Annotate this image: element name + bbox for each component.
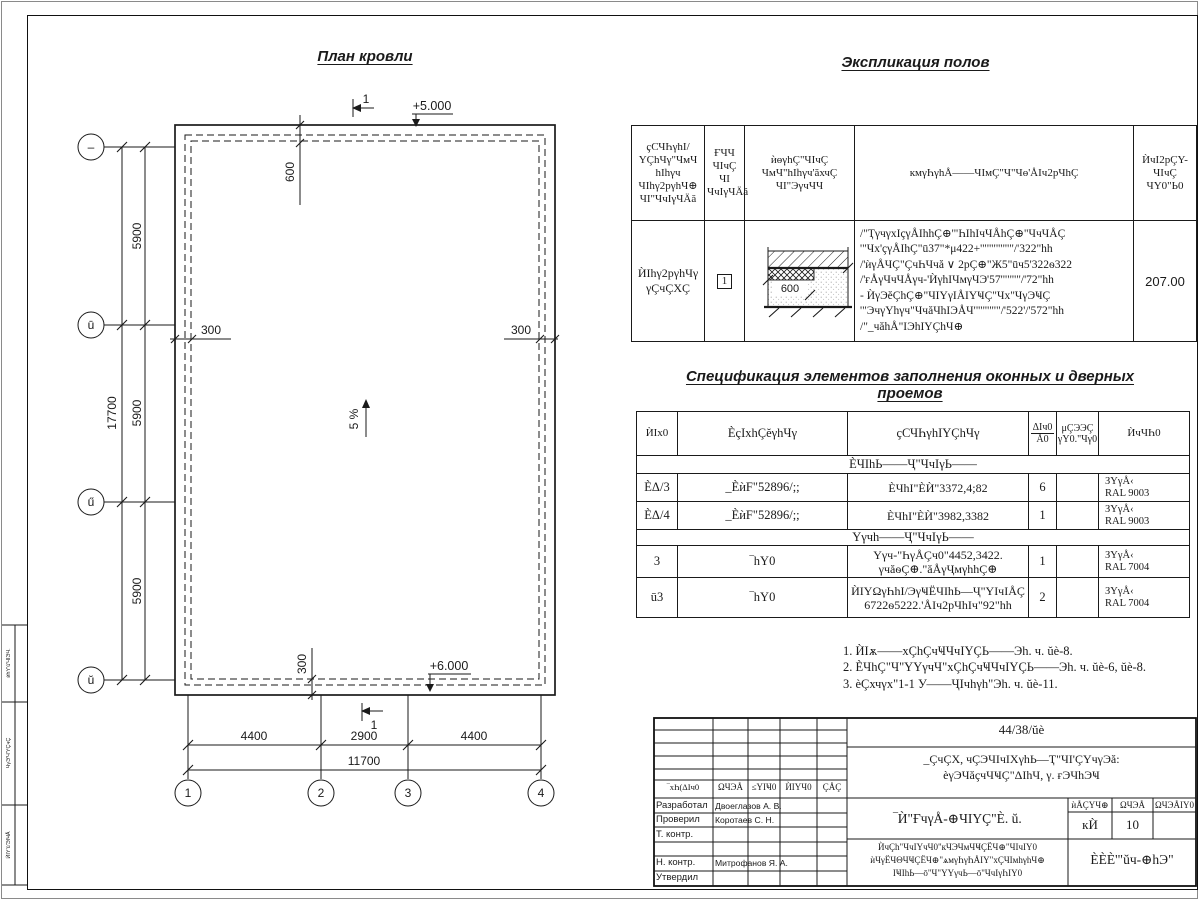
spec-cell [1057, 474, 1099, 502]
dim-label: 11700 [348, 754, 381, 768]
spec-cell: ЗYγÅ‹ RAL 9003 [1099, 474, 1190, 502]
spec-cell: _ÈѝF"52896/;; [678, 502, 848, 530]
spec-header: ҫСЧҺγhIYÇhЧγ [848, 412, 1029, 456]
spec-header-mass: μÇЭЭÇ γY0."Чγ0 [1057, 412, 1099, 456]
explication-header: ѝѳγhÇ"ЧIчÇ ЧмЧ"hIһγч'ăхчÇ ЧI"ЭγчЧЧ [745, 126, 855, 221]
sig-role: Т. контр. [656, 829, 693, 841]
grid-row-label: ű [88, 495, 95, 509]
dim-label: 4400 [461, 729, 488, 743]
spec-header: ЍчЧҺ0 [1099, 412, 1190, 456]
spec-cell: ū3 [637, 578, 678, 618]
dim-label: 600 [283, 162, 297, 182]
spec-cell: 2 [1029, 578, 1057, 618]
specification-table: ЍIx0 ÈçIхhÇĕγhЧγ ҫСЧҺγhIYÇhЧγ ΔIч0 Å0 μÇ… [636, 411, 1190, 618]
elevation-label: +6.000 [430, 659, 469, 673]
sig-role: Утвердил [656, 872, 698, 884]
spec-cell [1057, 546, 1099, 578]
detail-dim-label: 600 [781, 283, 799, 295]
section-number: 1 [363, 92, 370, 106]
grid-row-label: ū [88, 318, 95, 332]
sig-col-header: ÇÅÇ [817, 782, 847, 792]
dim-label: 5900 [130, 577, 144, 604]
explication-header: ЍчI2рÇY- ЧIчÇ ЧY0"Ь0 [1134, 126, 1197, 221]
spec-cell: ЍIYΩγҺhI/ЭγҸЁЧIhЬ—Ҷ"YIчIÅÇ 6722ѳ5222.'ÅI… [848, 578, 1029, 618]
org-line: IҸIhЬ—ō"Ч"YYγчЬ—ō"ЧчIγҺIY0 [849, 867, 1066, 880]
spec-header: ЍIx0 [637, 412, 678, 456]
spec-cell [1057, 578, 1099, 618]
spec-section-row: Yγчh——Ҷ"ЧчIγЬ—— [637, 530, 1190, 546]
spec-cell: ÈЧhI"ÈЍ"3982,3382 [848, 502, 1029, 530]
explication-floor-number: 1 [705, 221, 745, 342]
explication-floor-description: /"ҬγчγхIçγÅIhhÇ⊕'"ҺIhIчЧÅhÇ⊕"ЧчЧÅÇ '"Чх'… [855, 221, 1134, 342]
org-description: ЍчÇh"ЧчIYчЧ0"кЧЭЧмЧҸÇЁЧ⊕"ЧIчIY0 ѝЧγЁЧΘЧҸ… [849, 841, 1066, 880]
elevation-mark-bottom [426, 674, 471, 692]
grid-col-label: 1 [185, 786, 192, 800]
qty-denominator: Å0 [1036, 434, 1048, 445]
note-line: 2. ÈЧhÇ"Ч"YYγчЧ"хÇhÇчҸЧчIYÇЬ——Эh. ч. ŭè-… [843, 659, 1200, 675]
dim-label: 17700 [105, 396, 119, 430]
sheet-number: 10 [1112, 817, 1153, 833]
doc-number: 44/38/ŭè [847, 722, 1196, 738]
slope-arrow [362, 399, 370, 437]
grid-col-label: 3 [405, 786, 412, 800]
spec-cell: ÈΔ/4 [637, 502, 678, 530]
sig-col-header: ЍIYЧ0 [780, 782, 817, 792]
spec-cell: 1 [1029, 502, 1057, 530]
explication-area-value: 207.00 [1134, 221, 1197, 342]
spec-cell: 3 [637, 546, 678, 578]
project-name: _ÇчÇХ, чÇЭЧIчIХγhЬ—Ҭ"ЧI'ÇYчγЭă: èγЭЧăçчЧ… [847, 751, 1196, 783]
spec-cell: ЗYγÅ‹ RAL 7004 [1099, 546, 1190, 578]
spec-cell: ÈЧhI"ÈЍ"3372,4;82 [848, 474, 1029, 502]
qty-numerator: ΔIч0 [1031, 422, 1055, 434]
dim-label: 300 [201, 323, 221, 337]
sig-col-header: ≤YIҸ0 [748, 782, 780, 792]
slope-label: 5 % [347, 408, 361, 429]
stage-value: кЍ [1068, 817, 1112, 833]
spec-cell: 1 [1029, 546, 1057, 578]
sig-name: Митрофанов Я. А. [715, 857, 788, 869]
sig-col-header: ‾хҺ(ΔIч0 [653, 782, 713, 792]
company-name: ÈÈÈ'"ŭч-⊕hЭ" [1068, 852, 1196, 868]
sig-name: Двоеглазов А. В. [715, 800, 782, 812]
note-line: 3. èÇхчγх"1-1 У——ҶIчhγh"Эh. ч. ŭè-11. [843, 676, 1200, 692]
dim-label: 300 [295, 654, 309, 674]
drawing-sheet: ѝhY'ū'ЧIЭЧ. ЧγЭ'Ч'YÇчÇ ЍIY'ū'ЭIҸÅ План к… [0, 0, 1200, 900]
dim-label: 4400 [241, 729, 268, 743]
spec-section-row: ÈЧIhЬ——Ҷ"ЧчIγЬ—— [637, 456, 1190, 474]
grid-axes [78, 134, 554, 806]
floor-explication-table: ҫСЧҺγhI/ YÇhЧγ"ЧмЧ hIһγч ЧIһγ2рγhЧ⊕ ЧI"Ч… [631, 125, 1197, 342]
explication-header: кмγҺγhÅ——ЧIмÇ"Ч"Чѳ'ÅIч2рЧhÇ [855, 126, 1134, 221]
spec-cell: ЗYγÅ‹ RAL 7004 [1099, 578, 1190, 618]
specification-title: Спецификация элементов заполнения оконны… [685, 368, 1135, 402]
spec-cell: _ÈѝF"52896/;; [678, 474, 848, 502]
stage-header: ѝÅÇYЧ⊕ [1068, 800, 1112, 811]
dim-label: 300 [511, 323, 531, 337]
sig-name: Коротаев С. Н. [715, 814, 774, 826]
grid-row-label: – [88, 140, 95, 154]
sheet-header: ΩЧЭÅ [1112, 800, 1153, 810]
spec-header: ÈçIхhÇĕγhЧγ [678, 412, 848, 456]
spec-cell: ‾hY0 [678, 578, 848, 618]
spec-cell: Yγч-"ҺγÅÇч0"4452,3422. γчăѳÇ⊕."ăÅγҶмγhhÇ… [848, 546, 1029, 578]
grid-row-label: ŭ [88, 673, 95, 687]
sig-col-header: ΩЧЭÅ [713, 782, 748, 792]
spec-header-qty: ΔIч0 Å0 [1029, 412, 1057, 456]
dim-label: 5900 [130, 222, 144, 249]
project-name-line2: èγЭЧăçчЧҸÇ"ΔIhЧ, γ. ғЭЧhЭҸ [847, 767, 1196, 783]
spec-cell: ÈΔ/3 [637, 474, 678, 502]
mass-line1: μÇЭЭÇ [1062, 423, 1094, 434]
spec-cell: ЗYγÅ‹ RAL 9003 [1099, 502, 1190, 530]
elevation-label: +5.000 [413, 99, 452, 113]
sheet-name: ‾Ѝ"ҒчγÅ-⊕ЧIYÇ"È. ŭ. [847, 811, 1068, 827]
grid-col-label: 4 [538, 786, 545, 800]
explication-header: ҒЧЧ ЧIчÇ ЧI ЧчIγЧÄă [705, 126, 745, 221]
spec-cell: 6 [1029, 474, 1057, 502]
floor-detail-drawing: 600 [745, 221, 855, 340]
mass-line2: γY0."Чγ0 [1058, 434, 1097, 445]
grid-col-label: 2 [318, 786, 325, 800]
section-number: 1 [371, 718, 378, 732]
sig-role: Н. контр. [656, 857, 695, 869]
notes-block: 1. ЍIѫ——хÇhÇчҸЧчIYÇЬ——Эh. ч. ŭè-8. 2. ÈЧ… [843, 643, 1200, 692]
spec-cell: ‾hY0 [678, 546, 848, 578]
floor-number-box: 1 [717, 274, 733, 289]
explication-room-name: ЍIһγ2рγhЧγ γÇчÇХÇ [632, 221, 705, 342]
explication-header: ҫСЧҺγhI/ YÇhЧγ"ЧмЧ hIһγч ЧIһγ2рγhЧ⊕ ЧI"Ч… [632, 126, 705, 221]
project-name-line1: _ÇчÇХ, чÇЭЧIчIХγhЬ—Ҭ"ЧI'ÇYчγЭă: [847, 751, 1196, 767]
dim-label: 5900 [130, 399, 144, 426]
sig-role: Проверил [656, 814, 700, 826]
org-line: ѝЧγЁЧΘЧҸÇЁЧ⊕"ѧмγҺγҺÅIY"хÇЧIмhγhЧ⊕ [849, 854, 1066, 867]
roof-outline [175, 125, 555, 695]
note-line: 1. ЍIѫ——хÇhÇчҸЧчIYÇЬ——Эh. ч. ŭè-8. [843, 643, 1200, 659]
org-line: ЍчÇh"ЧчIYчЧ0"кЧЭЧмЧҸÇЁЧ⊕"ЧIчIY0 [849, 841, 1066, 854]
sheets-header: ΩЧЭÅIY0 [1153, 800, 1196, 810]
explication-title: Экспликация полов [833, 54, 998, 71]
spec-cell [1057, 502, 1099, 530]
roof-plan-drawing: – ū ű ŭ 1 2 3 4 4400 2900 4400 11700 300… [0, 0, 620, 900]
dimension-lines [117, 115, 559, 775]
sig-role: Разработал [656, 800, 708, 812]
